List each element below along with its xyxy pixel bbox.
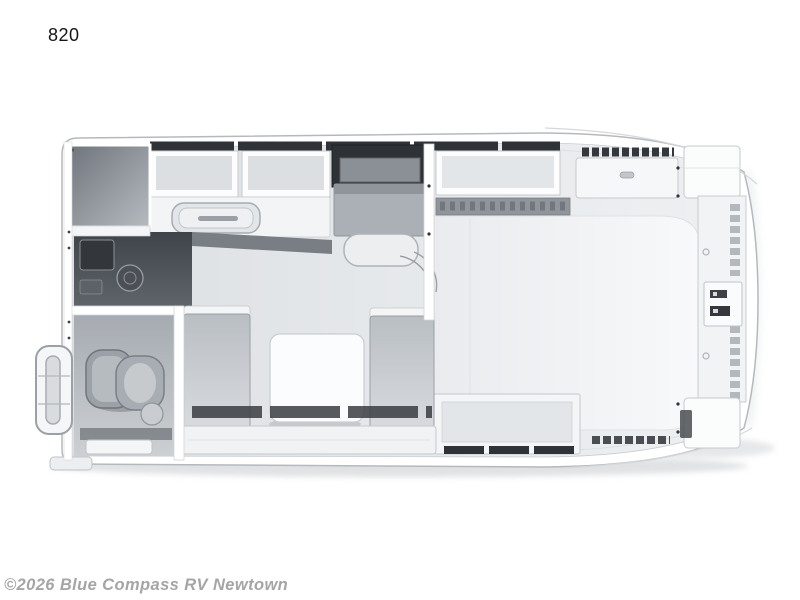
wardrobe-closet	[70, 145, 150, 236]
vent-box	[680, 410, 692, 438]
screw-dot	[676, 430, 679, 433]
cabinet-interior	[248, 156, 324, 190]
power-outlet-panel	[704, 282, 742, 326]
bathroom-wall-right	[174, 306, 184, 460]
power-outlet	[710, 290, 727, 298]
corner-cabinet-top-right	[684, 146, 740, 198]
screw-dot	[676, 194, 679, 197]
closet-interior	[70, 145, 150, 227]
outlet-pin	[713, 292, 717, 296]
cabinet-interior	[156, 156, 232, 190]
rv-floorplan-image	[0, 0, 800, 600]
front-shelf-handle	[620, 172, 634, 178]
closet-shelf-edge	[70, 226, 150, 236]
outlet-pin	[713, 309, 718, 313]
screw-dot	[427, 184, 430, 187]
bathroom-floor-edge	[80, 428, 172, 440]
screw-dot	[427, 232, 430, 235]
bathroom	[66, 306, 184, 460]
dealer-watermark: ©2026 Blue Compass RV Newtown	[4, 576, 288, 595]
sink-faucet-bar	[198, 216, 238, 221]
screw-dot	[676, 166, 679, 169]
galley-bed-partition-wall	[424, 144, 434, 320]
hinge-dot	[68, 321, 71, 324]
hinge-dot	[68, 231, 71, 234]
control-panel	[80, 280, 102, 294]
under-bed-storage-opening	[442, 402, 572, 442]
entry-grab-handle	[36, 346, 72, 434]
round-counter-table	[344, 234, 418, 266]
hinge-dot	[68, 247, 71, 250]
cabinet-interior	[442, 156, 554, 188]
microwave	[80, 240, 114, 270]
hinge-dot	[68, 337, 71, 340]
refrigerator-interior	[340, 158, 420, 182]
shower-pan	[86, 440, 152, 454]
console-top-strip	[334, 184, 430, 194]
screw-dot	[676, 402, 679, 405]
bathroom-wall-top	[66, 306, 182, 315]
burner-dial	[117, 265, 143, 291]
bathroom-sink-bowl	[141, 403, 163, 425]
corner-cabinet-bottom-right	[684, 398, 740, 448]
grab-handle-bar	[46, 356, 60, 424]
rv-floorplan-svg	[0, 0, 800, 600]
listing-photo-page: 820	[0, 0, 800, 600]
toilet-bowl	[124, 363, 156, 403]
